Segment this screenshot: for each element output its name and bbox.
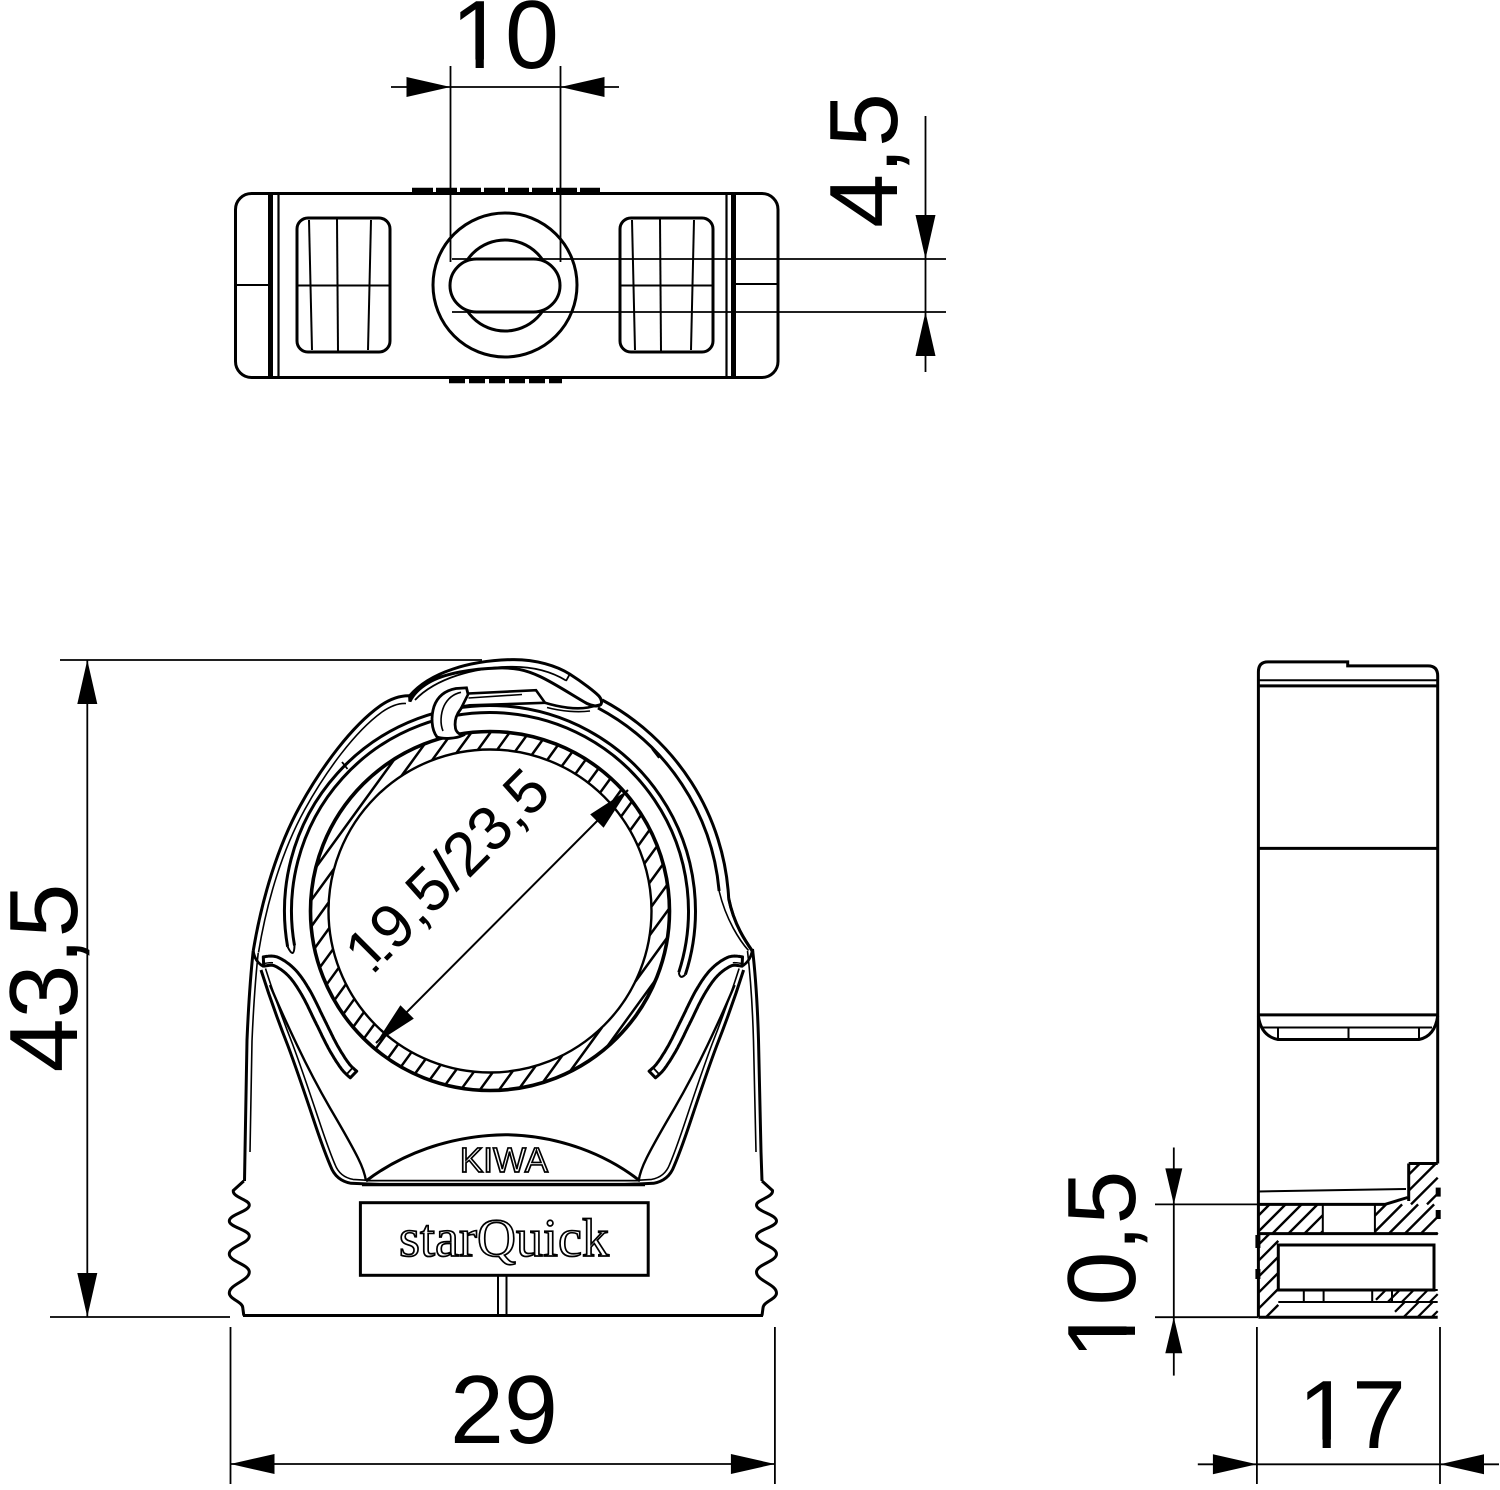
svg-text:starQuick: starQuick [399,1208,609,1268]
svg-text:KIWA: KIWA [460,1141,549,1180]
svg-text:17: 17 [1298,1360,1406,1469]
svg-text:29: 29 [450,1355,558,1464]
svg-text:43,5: 43,5 [0,884,98,1073]
svg-text:10,5: 10,5 [1047,1171,1156,1360]
svg-text:4,5: 4,5 [809,93,918,228]
svg-text:10: 10 [451,0,559,89]
